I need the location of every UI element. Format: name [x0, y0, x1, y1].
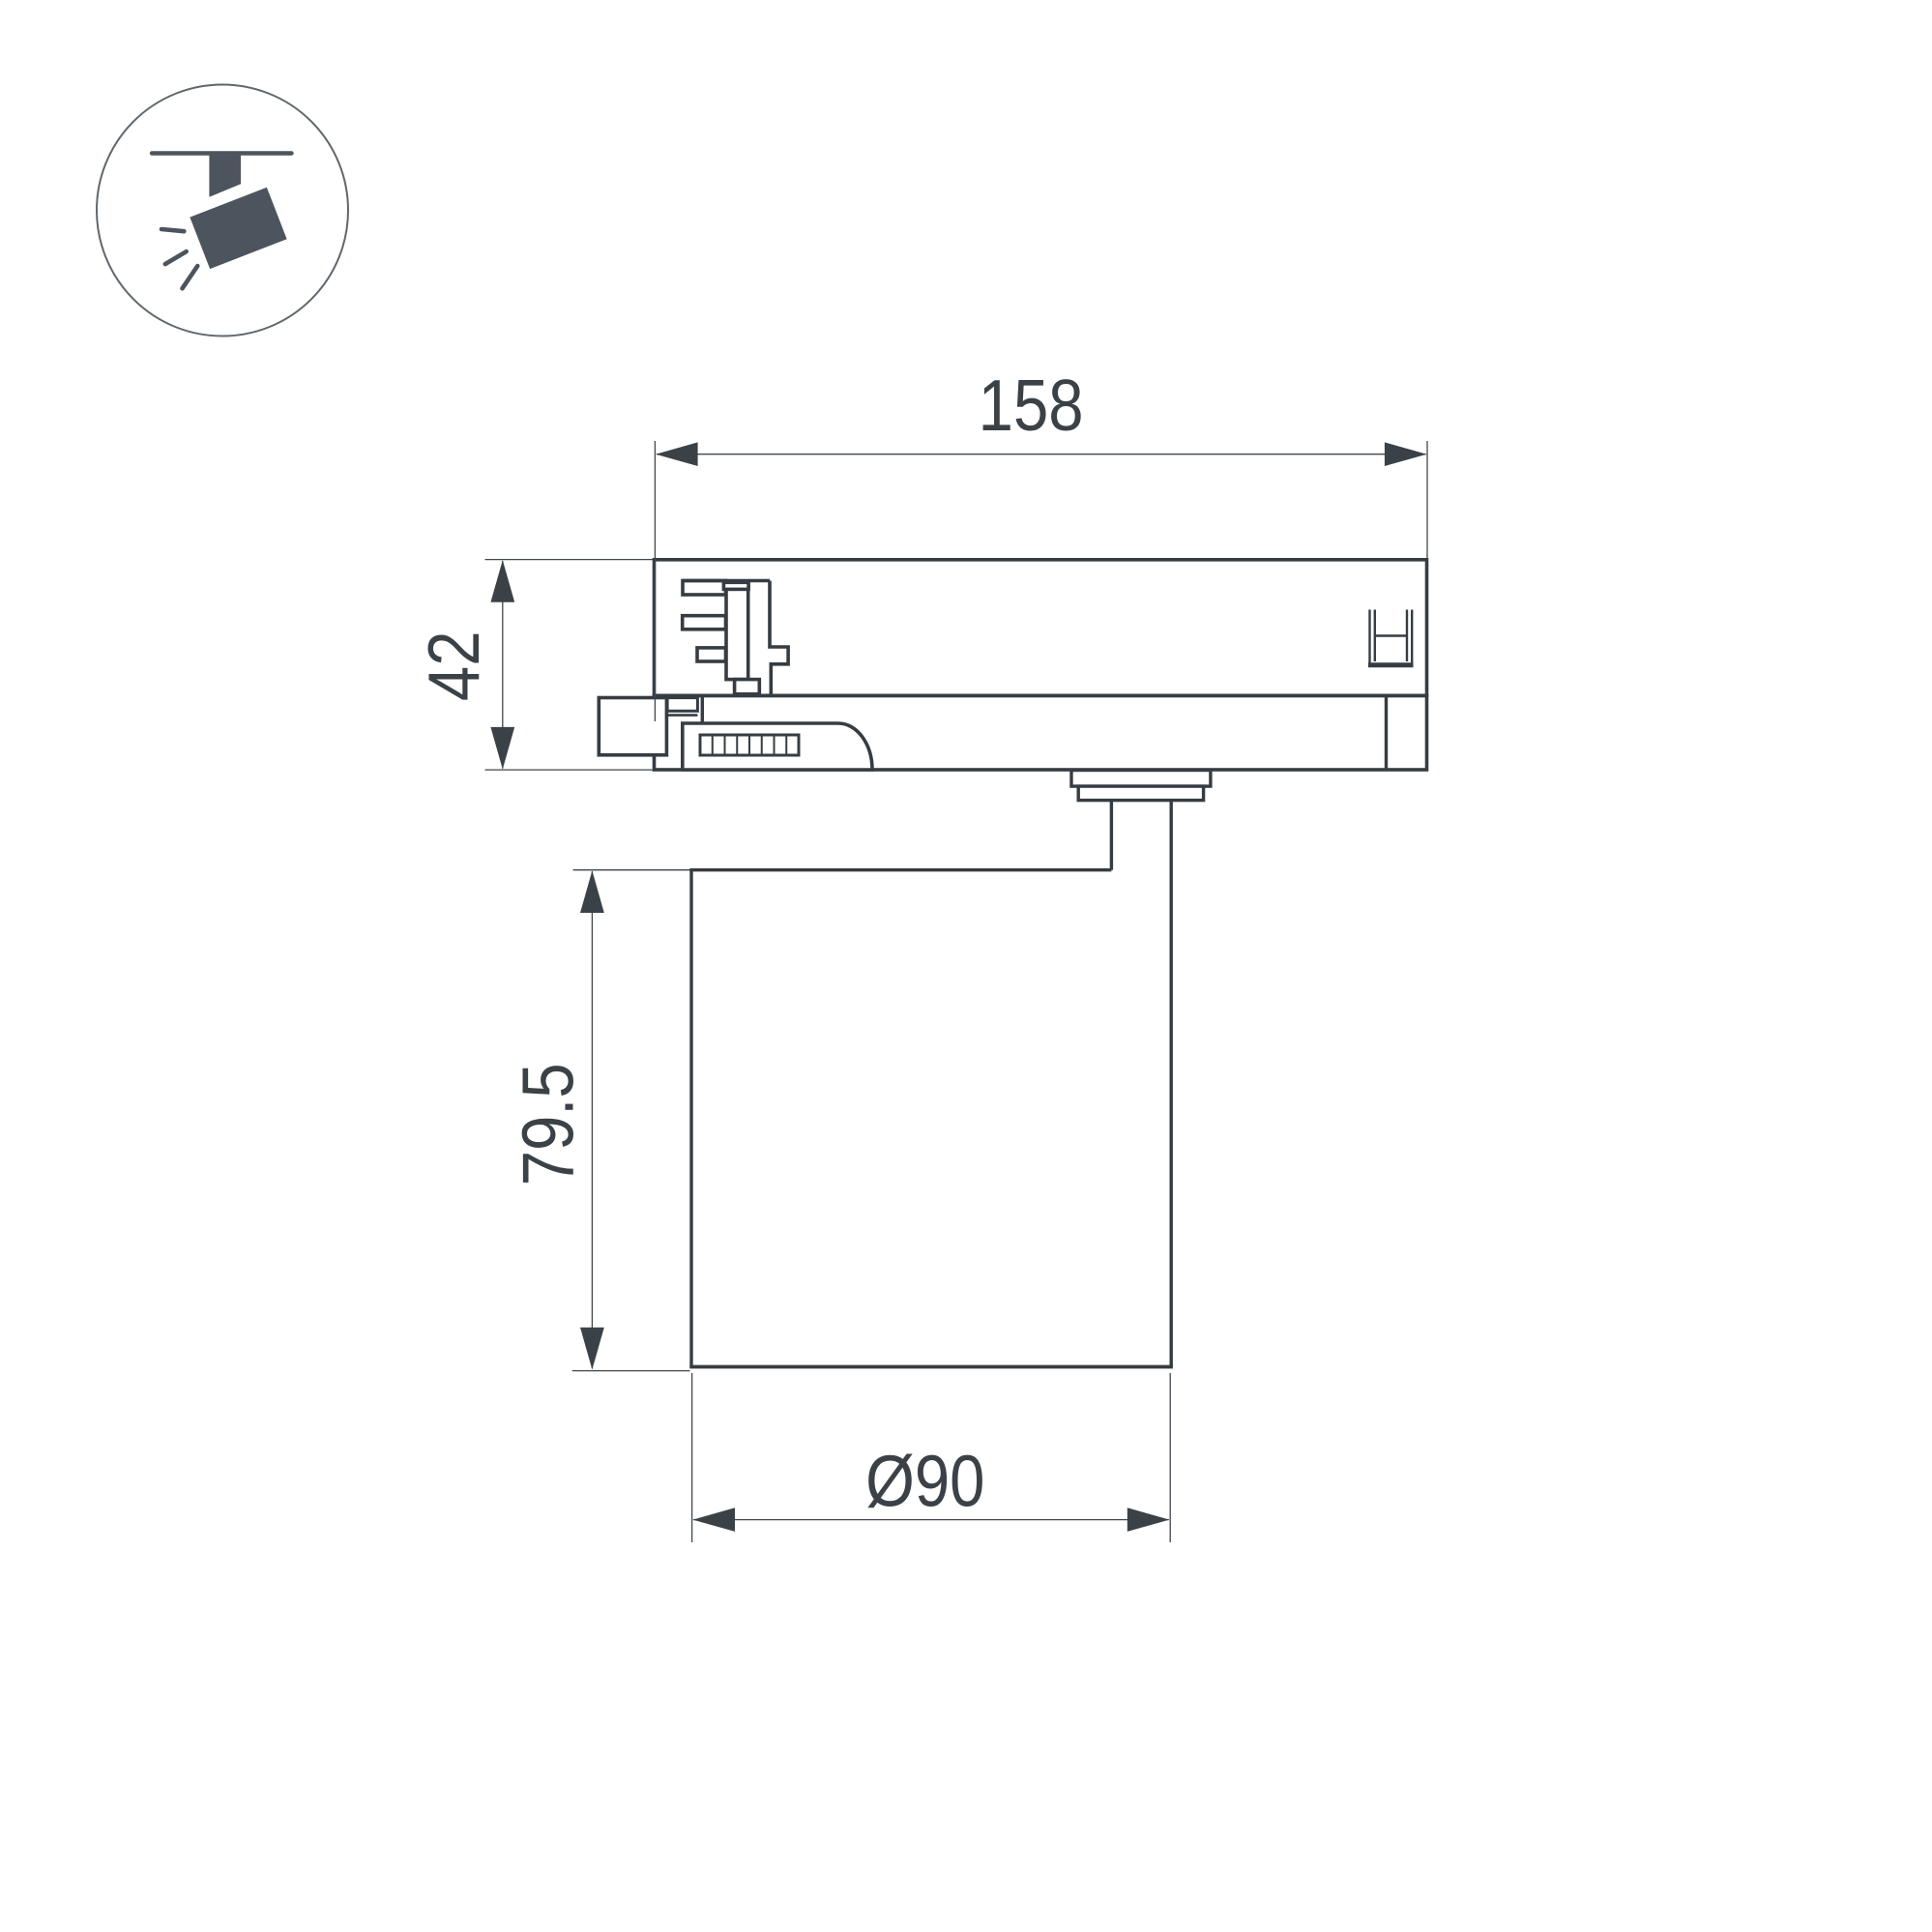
- svg-text:79.5: 79.5: [507, 1063, 588, 1186]
- svg-text:158: 158: [979, 365, 1084, 446]
- svg-text:42: 42: [413, 631, 494, 702]
- svg-text:Ø90: Ø90: [865, 1440, 984, 1521]
